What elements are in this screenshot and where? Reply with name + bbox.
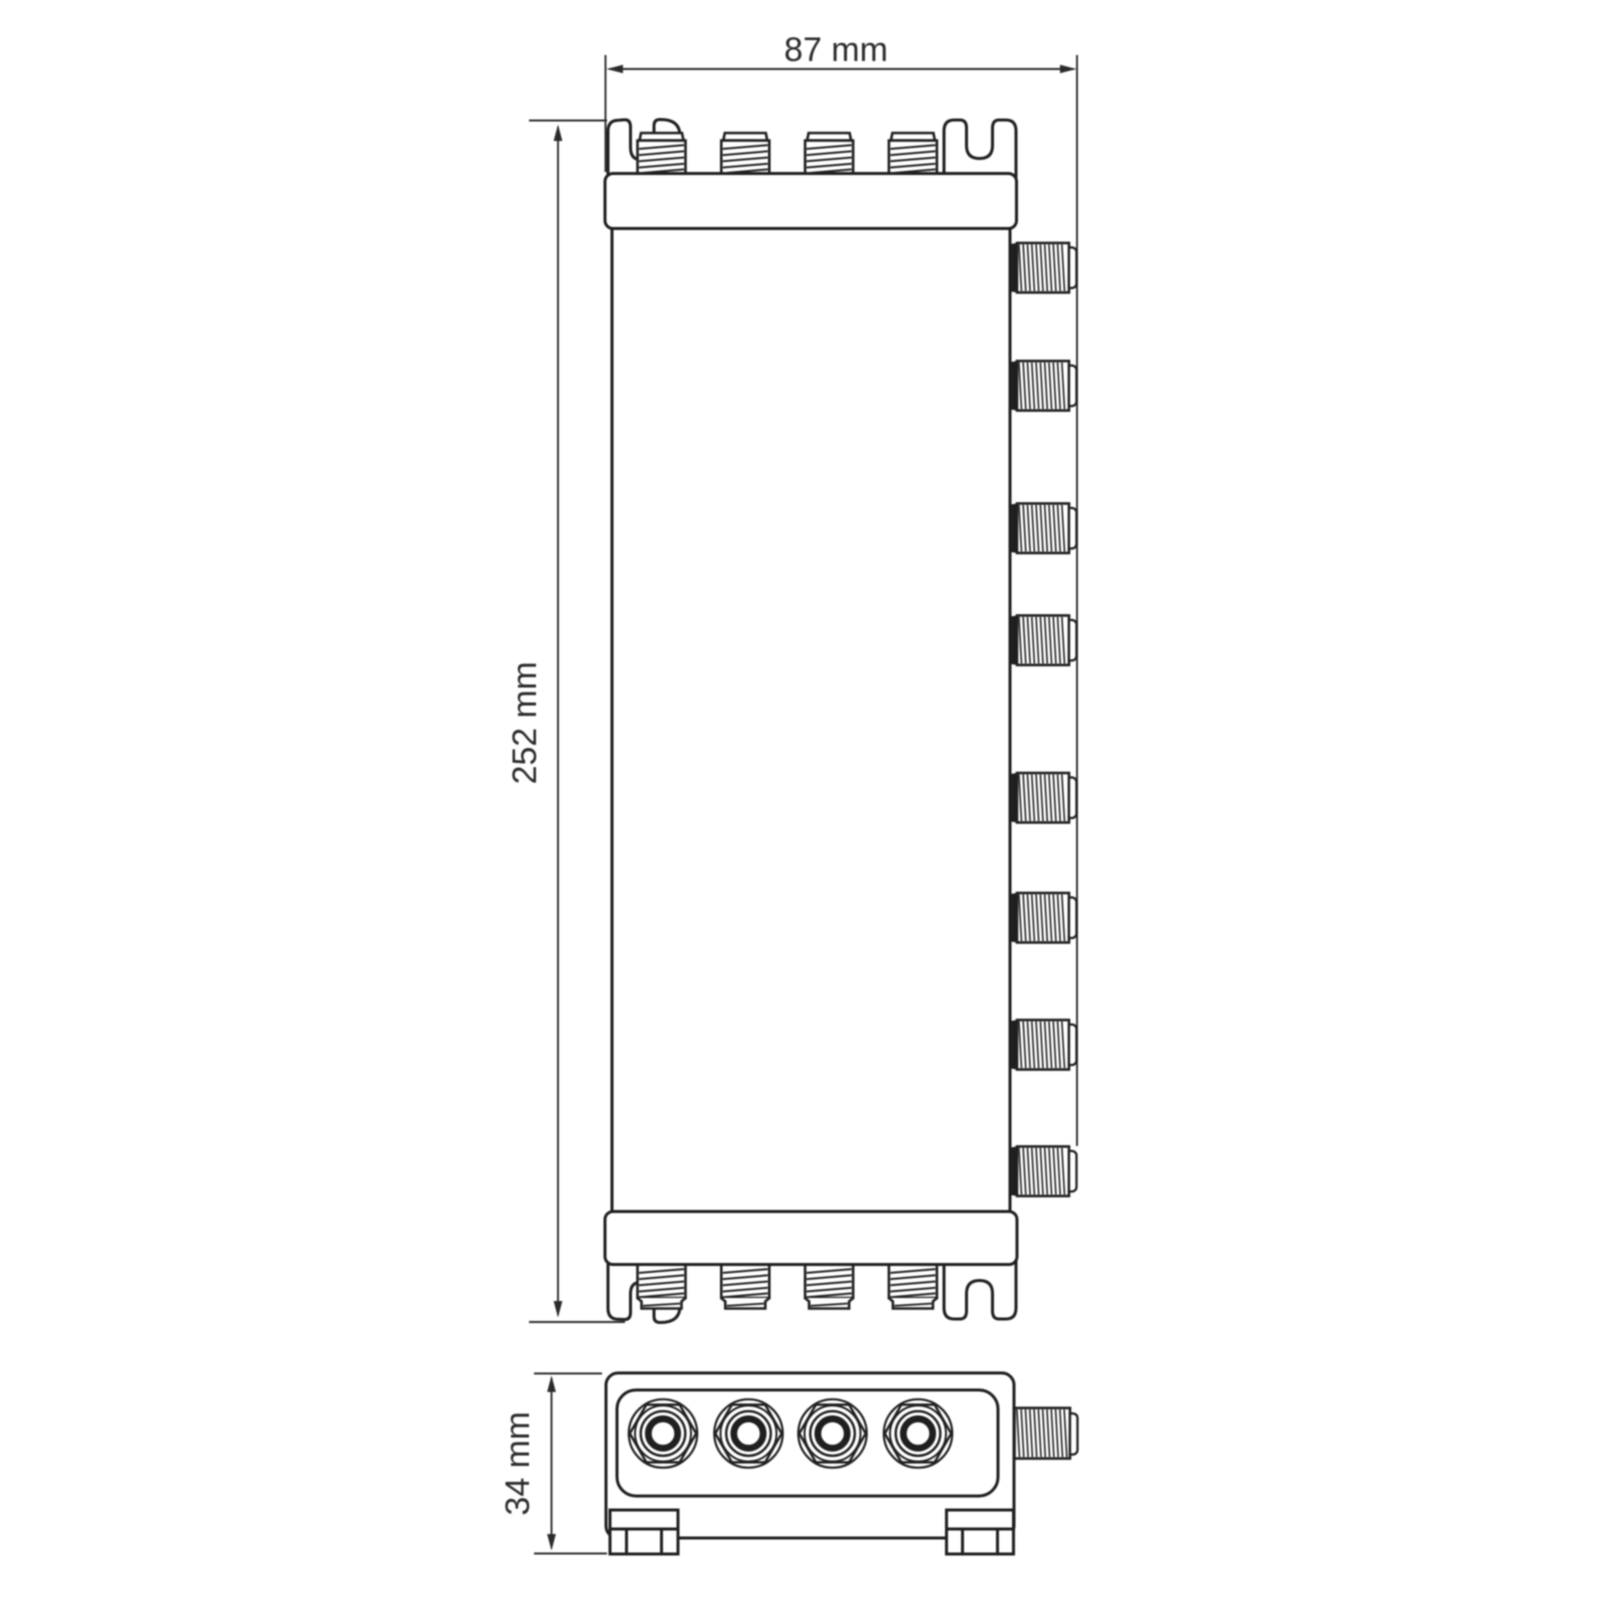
svg-text:87 mm: 87 mm bbox=[784, 31, 888, 69]
svg-text:252 mm: 252 mm bbox=[506, 662, 544, 785]
svg-text:34 mm: 34 mm bbox=[499, 1412, 537, 1516]
